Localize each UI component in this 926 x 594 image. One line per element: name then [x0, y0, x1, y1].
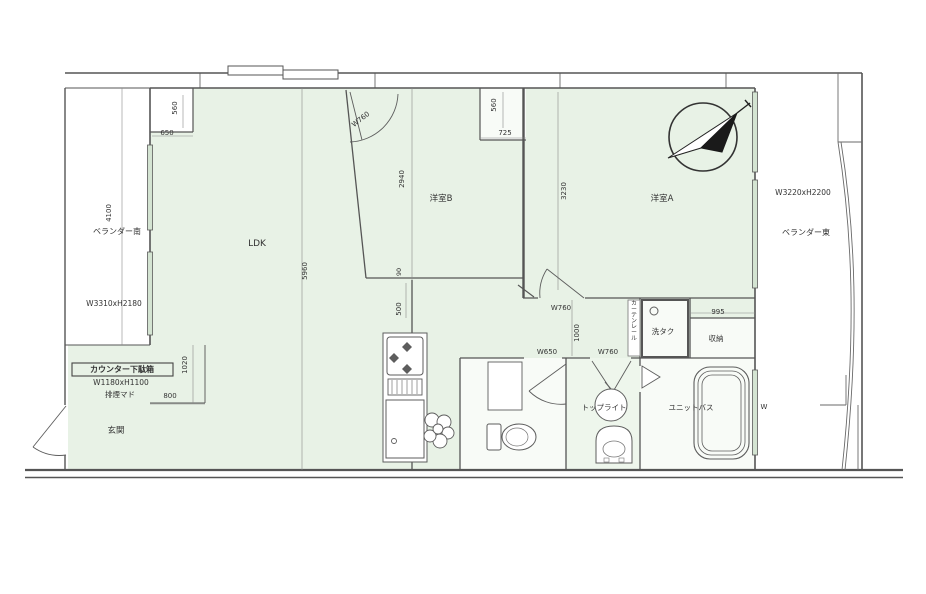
label-counter-shoebox: カウンター下駄箱 [90, 364, 154, 374]
floor-plan-drawing: 5606504100ベランダー南W3310xH2180カウンター下駄箱W1180… [0, 0, 926, 594]
dim-1000: 1000 [573, 324, 581, 342]
window-bath-east [753, 370, 758, 455]
label-genkan: 玄関 [107, 425, 124, 436]
dim-1020: 1020 [181, 356, 189, 374]
dim-2940: 2940 [398, 170, 406, 188]
label-toplight: トップライト [582, 403, 627, 412]
label-w-partial: W [761, 403, 768, 411]
dim-500: 500 [395, 302, 403, 315]
dim-w650-toilet-door: W650 [537, 348, 557, 356]
label-counter-shoebox-size: W1180xH1100 [93, 378, 149, 387]
dim-4100: 4100 [105, 204, 113, 222]
label-balcony-left: ベランダー南 [93, 226, 141, 236]
toilet-tank [487, 424, 501, 450]
floor-plan-page: 5606504100ベランダー南W3310xH2180カウンター下駄箱W1180… [0, 0, 926, 594]
top-wall-pilaster-2 [283, 70, 338, 79]
dim-725: 725 [498, 129, 511, 137]
label-curtain-rail: カーテンレール [631, 300, 637, 342]
label-shuno: 収納 [709, 333, 724, 343]
window-ldk-west-1 [148, 145, 153, 230]
window-room-a-east-2 [753, 180, 758, 288]
dim-w760-roomA-door: W760 [551, 304, 571, 312]
label-sentaku: 洗タク [652, 326, 675, 336]
dim-90: 90 [395, 268, 403, 276]
label-room-a: 洋室A [651, 193, 674, 204]
label-haien-mado: 排煙マド [105, 389, 135, 399]
window-ldk-west-2 [148, 252, 153, 335]
label-room-b: 洋室B [430, 193, 453, 204]
kitchen-cabinet [386, 400, 424, 458]
label-balcony-right: ベランダー東 [782, 227, 830, 237]
balcony-right [820, 73, 862, 470]
toilet-counter [488, 362, 522, 410]
dim-5960: 5960 [301, 262, 309, 280]
label-balcony-right-size: W3220xH2200 [775, 188, 831, 197]
window-room-a-east-1 [753, 92, 758, 172]
dim-560-left-notch: 560 [171, 101, 179, 114]
dim-w760-washroom-door: W760 [598, 348, 618, 356]
entrance-door-leaf [33, 406, 66, 447]
top-wall-pilaster-1 [228, 66, 283, 75]
dim-3230: 3230 [560, 182, 568, 200]
label-ldk: LDK [248, 239, 267, 249]
dim-800: 800 [163, 392, 176, 400]
kitchen [383, 333, 427, 462]
label-balcony-left-size: W3310xH2180 [86, 299, 142, 308]
dim-650-left-notch: 650 [160, 129, 173, 137]
vanity [596, 426, 632, 463]
entrance-door-arc [33, 447, 66, 455]
dim-995: 995 [711, 308, 724, 316]
dim-560-closet: 560 [490, 98, 498, 111]
label-unit-bath: ユニットバス [669, 403, 714, 412]
